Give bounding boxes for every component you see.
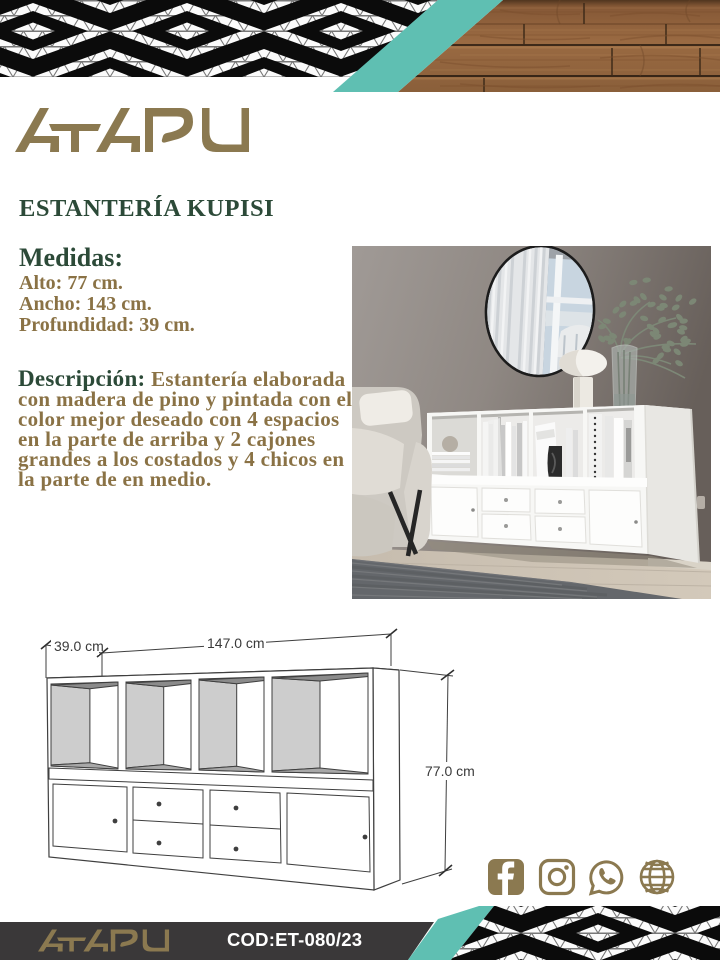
svg-text:39.0 cm: 39.0 cm	[54, 638, 104, 654]
svg-text:147.0 cm: 147.0 cm	[207, 635, 265, 651]
svg-text:77.0 cm: 77.0 cm	[425, 763, 475, 779]
